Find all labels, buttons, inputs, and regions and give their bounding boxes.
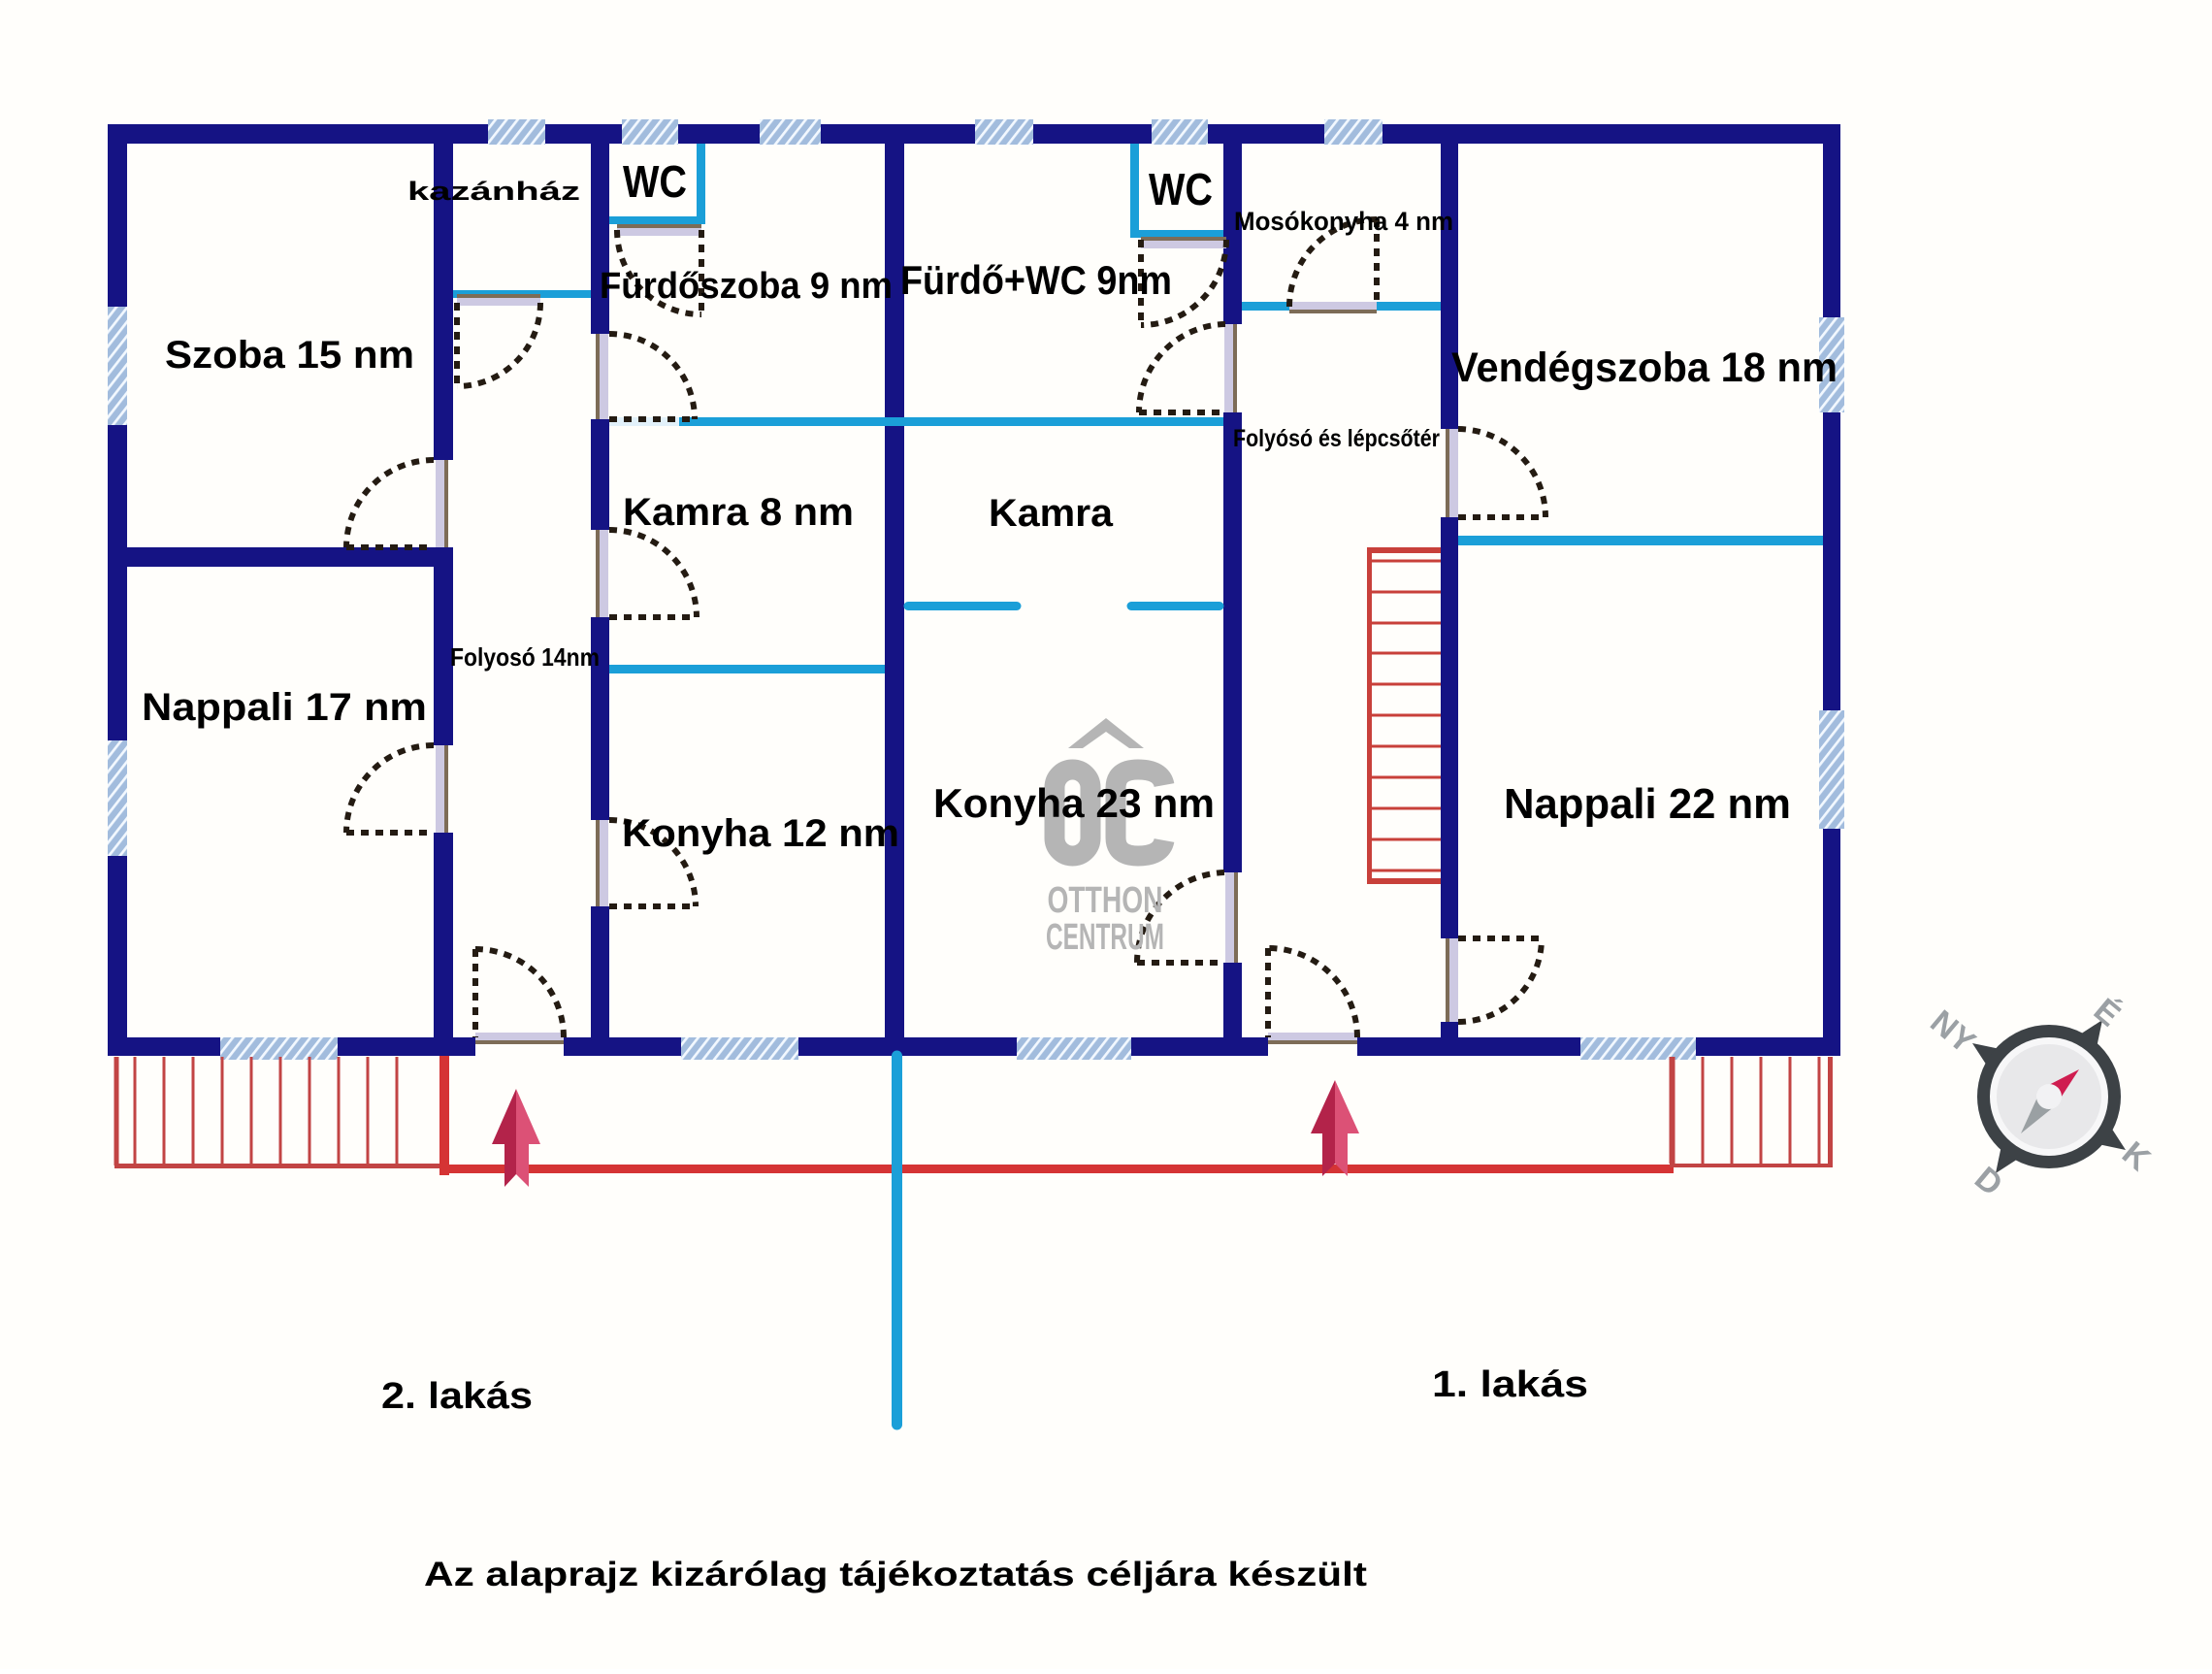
svg-text:WC: WC [1149,164,1213,214]
svg-text:Vendégszoba 18 nm: Vendégszoba 18 nm [1451,345,1838,391]
svg-text:kazánház: kazánház [407,177,580,206]
svg-text:Folyósó és lépcsőtér: Folyósó és lépcsőtér [1233,425,1440,452]
svg-text:Mosókonyha 4 nm: Mosókonyha 4 nm [1234,207,1453,236]
svg-text:WC: WC [623,156,687,207]
svg-text:Fürdő+WC 9nm: Fürdő+WC 9nm [900,257,1172,303]
svg-text:Kamra 8 nm: Kamra 8 nm [623,491,854,534]
svg-text:Nappali 22 nm: Nappali 22 nm [1504,780,1791,828]
svg-text:Konyha 23 nm: Konyha 23 nm [933,780,1215,826]
svg-text:OTTHON: OTTHON [1048,880,1163,921]
svg-text:CENTRUM: CENTRUM [1046,917,1164,958]
svg-text:Nappali 17 nm: Nappali 17 nm [142,686,427,729]
svg-text:2. lakás: 2. lakás [381,1376,533,1417]
svg-text:Kamra: Kamra [989,492,1114,535]
svg-text:Fürdőszoba 9 nm: Fürdőszoba 9 nm [600,266,893,307]
svg-text:Konyha 12 nm: Konyha 12 nm [622,812,899,855]
svg-text:Az alaprajz kizárólag tájékozt: Az alaprajz kizárólag tájékoztatás céljá… [424,1556,1367,1593]
svg-text:1. lakás: 1. lakás [1432,1364,1588,1405]
svg-text:Szoba 15 nm: Szoba 15 nm [165,334,414,377]
svg-text:Folyosó 14nm: Folyosó 14nm [450,642,600,672]
